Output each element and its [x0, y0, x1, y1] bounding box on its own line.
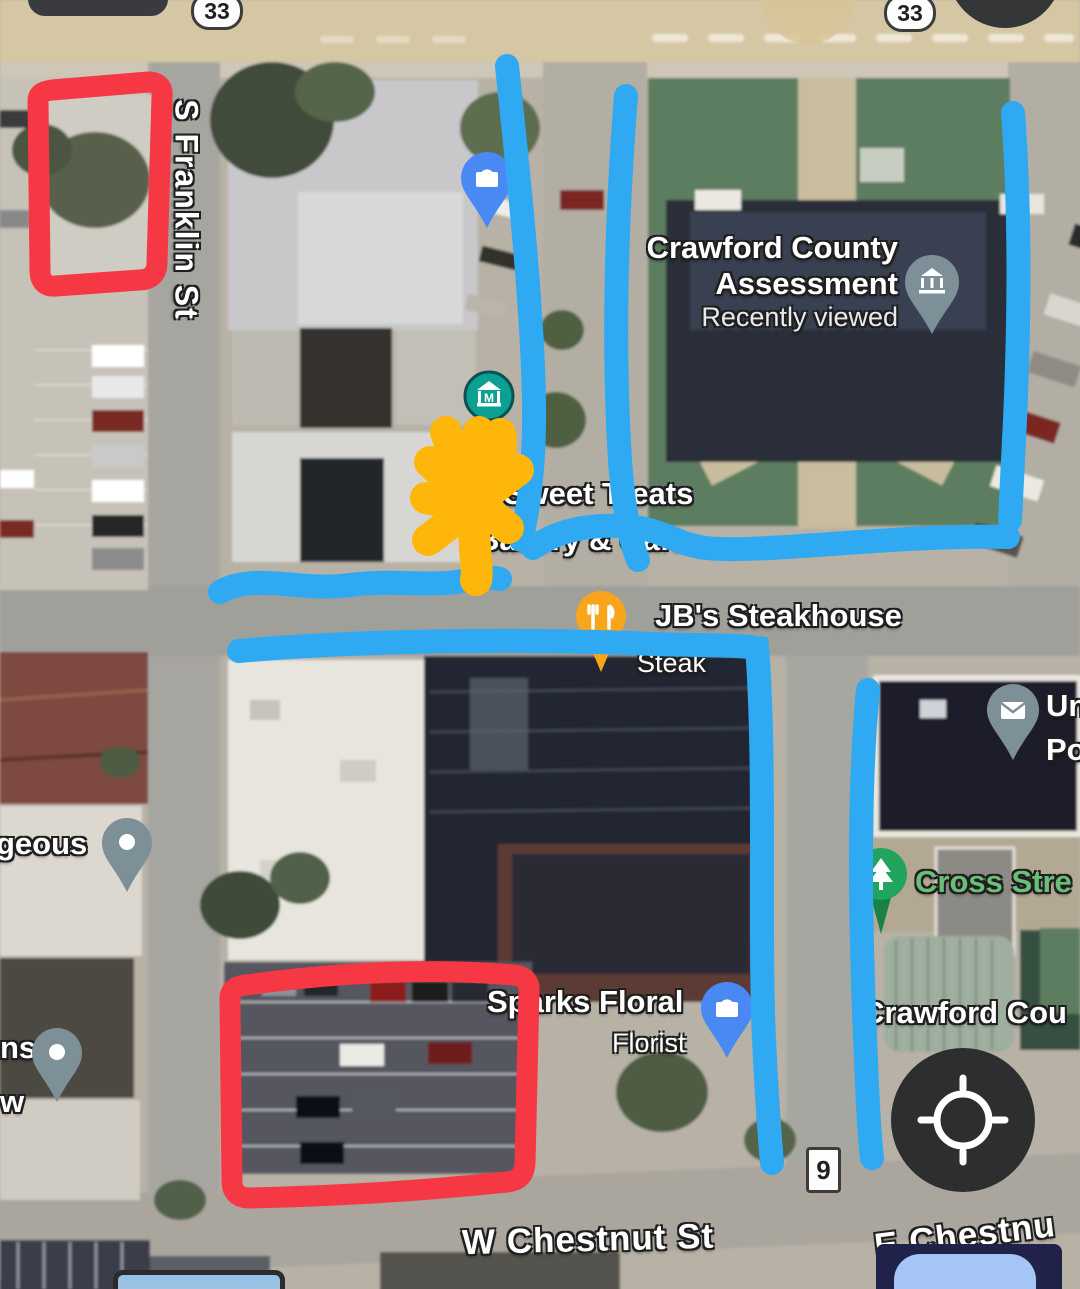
- shopping-bag-pin-icon[interactable]: [461, 152, 513, 228]
- shopping-bag-pin-icon[interactable]: [701, 982, 753, 1058]
- place-pin-icon[interactable]: [32, 1028, 82, 1102]
- government-pin-icon[interactable]: [905, 255, 959, 334]
- mail-pin-icon[interactable]: [987, 684, 1039, 760]
- my-location-button[interactable]: [891, 1048, 1035, 1192]
- tree-pin-icon[interactable]: [855, 848, 907, 934]
- bottom-sheet-handle: [894, 1254, 1036, 1289]
- maps-app-screen: S Franklin St Crawford County Assessment…: [0, 0, 1080, 1289]
- top-left-button-partial[interactable]: [28, 0, 168, 16]
- place-pin-icon[interactable]: [102, 818, 152, 892]
- photo-thumbnail[interactable]: [113, 1270, 285, 1289]
- gps-crosshair-icon: [915, 1072, 1011, 1168]
- restaurant-pin-icon[interactable]: [576, 591, 626, 672]
- museum-pin-icon[interactable]: M: [465, 372, 513, 434]
- svg-text:M: M: [484, 391, 494, 405]
